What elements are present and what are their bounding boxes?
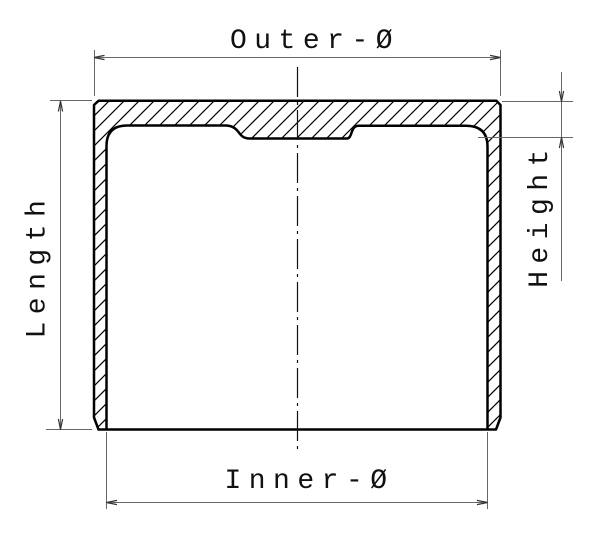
svg-text:Length: Length <box>23 193 54 339</box>
svg-text:Inner-Ø: Inner-Ø <box>224 466 394 497</box>
svg-text:Outer-Ø: Outer-Ø <box>230 26 400 57</box>
svg-text:Height: Height <box>525 142 556 288</box>
